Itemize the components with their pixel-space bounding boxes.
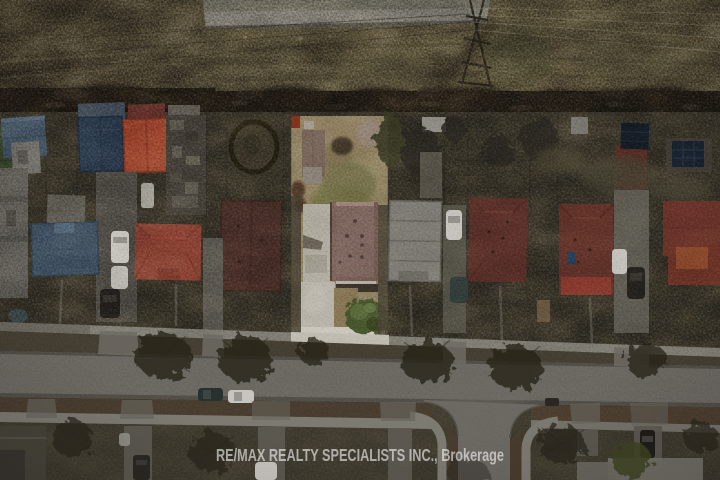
svg-text:RE/MAX REALTY SPECIALISTS INC.: RE/MAX REALTY SPECIALISTS INC., Brokerag…: [216, 445, 504, 465]
